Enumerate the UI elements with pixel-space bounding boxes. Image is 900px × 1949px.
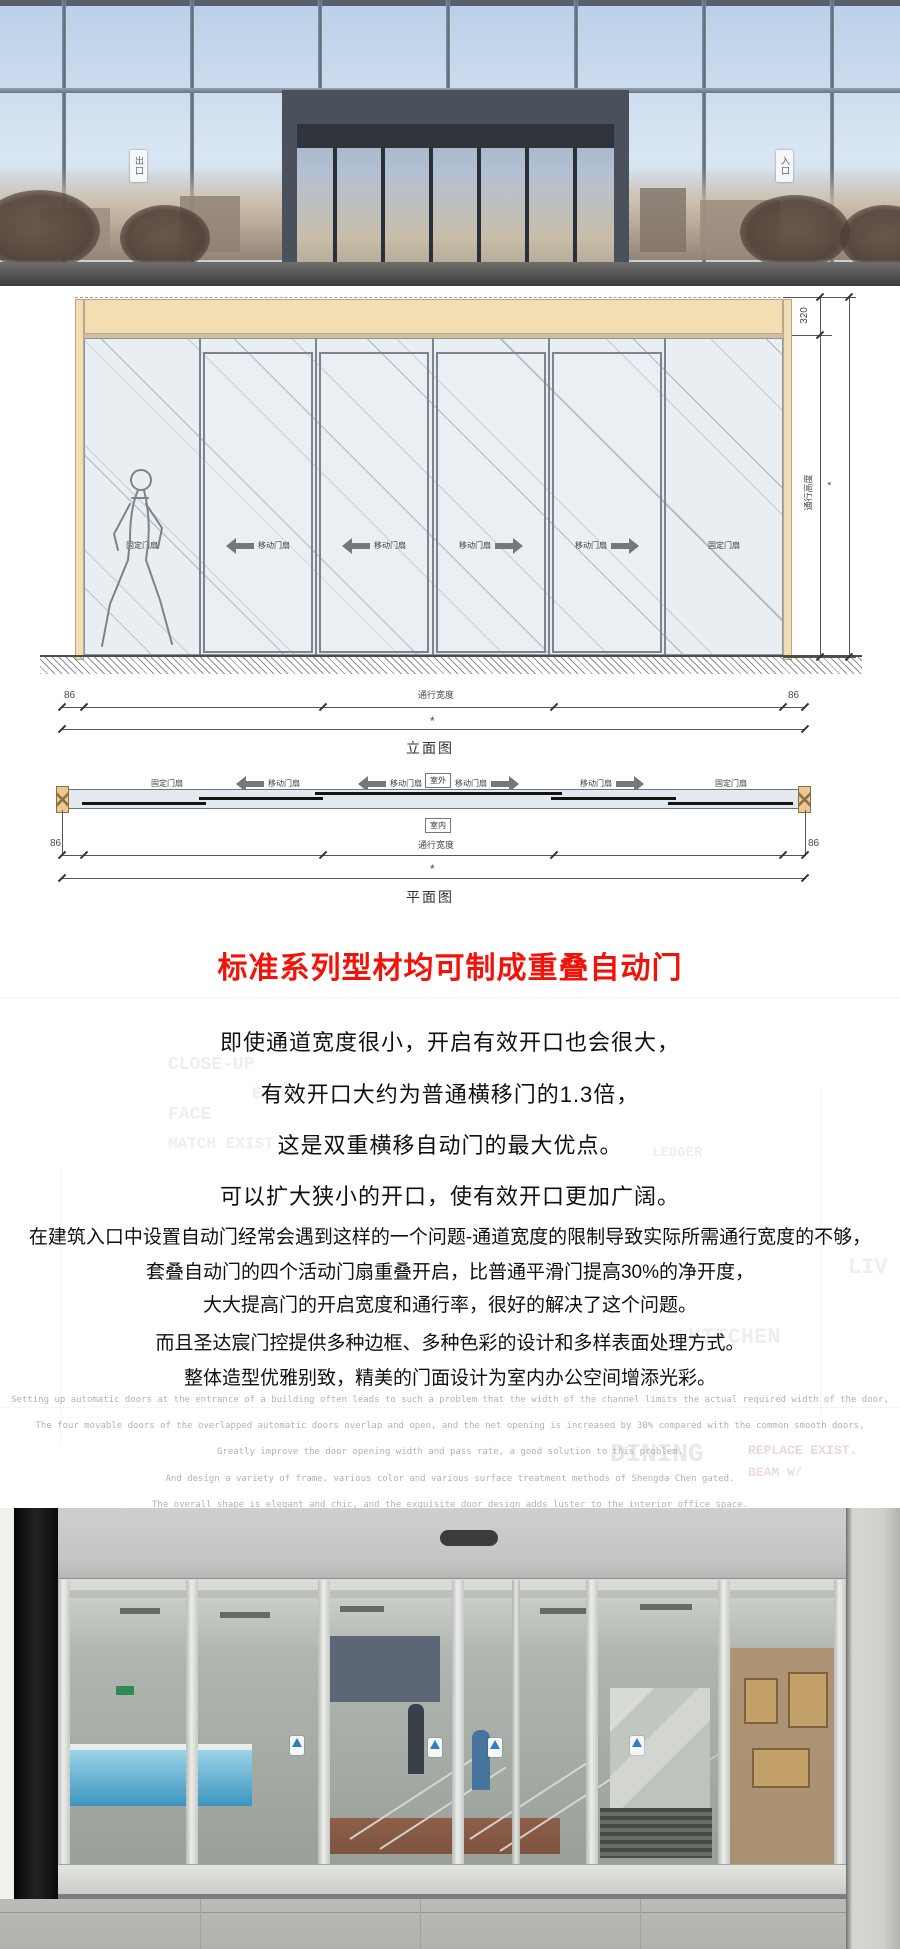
person-figure bbox=[88, 464, 193, 656]
plan-label-moving-right: 移动门扇 bbox=[455, 778, 519, 789]
detail-line: 而且圣达宸门控提供多种边框、多种色彩的设计和多样表面处理方式。 bbox=[0, 1328, 900, 1355]
english-line-clipped: The overall shape is elegant and chic, a… bbox=[0, 1500, 900, 1508]
ceiling-vent bbox=[540, 1608, 586, 1614]
sliding-leaf-outline bbox=[319, 352, 429, 653]
tile-floor bbox=[0, 1899, 900, 1949]
dim-86-left: 86 bbox=[64, 690, 75, 701]
panel-label-text: 固定门扇 bbox=[708, 540, 740, 551]
panel-label-fixed: 固定门扇 bbox=[708, 540, 740, 551]
plan-dim-86-right: 86 bbox=[808, 838, 819, 849]
panel-label-text: 移动门扇 bbox=[580, 778, 612, 789]
hero-photo-building-entrance: 出口 入口 bbox=[0, 0, 900, 286]
english-line: And design a variety of frame, various c… bbox=[0, 1474, 900, 1484]
dim-tick bbox=[801, 703, 809, 711]
panel-label-text: 固定门扇 bbox=[151, 778, 183, 789]
wall-plaque bbox=[744, 1678, 778, 1724]
extension-line bbox=[792, 335, 832, 336]
facade-base bbox=[0, 262, 900, 286]
dim-height-star: * bbox=[826, 482, 837, 486]
section-title: 标准系列型材均可制成重叠自动门 bbox=[0, 943, 900, 987]
plan-leaf bbox=[315, 792, 440, 795]
panel-label-text: 移动门扇 bbox=[459, 540, 491, 551]
radiator-grille bbox=[600, 1808, 712, 1858]
staircase-reflection bbox=[610, 1688, 710, 1808]
panel-label-text: 移动门扇 bbox=[374, 540, 406, 551]
outdoor-walkway bbox=[330, 1818, 560, 1854]
panel-divider bbox=[664, 338, 666, 655]
warning-sticker-icon bbox=[290, 1736, 304, 1755]
panel-label-text: 移动门扇 bbox=[575, 540, 607, 551]
panel-divider bbox=[199, 338, 201, 655]
door-frame-mullion bbox=[58, 1580, 70, 1900]
dark-door-jamb bbox=[14, 1508, 58, 1949]
detail-line: 套叠自动门的四个活动门扇重叠开启，比普通平滑门提高30%的净开度， bbox=[0, 1257, 900, 1284]
watermark-text: CLOSE-UP bbox=[168, 1055, 254, 1075]
dim-width-label: 通行宽度 bbox=[418, 688, 454, 701]
door-frame-mullion bbox=[186, 1580, 198, 1900]
arrow-right-icon bbox=[495, 543, 513, 549]
reflected-tree bbox=[740, 195, 850, 269]
feature-line: 即使通道宽度很小，开启有效开口也会很大， bbox=[0, 1025, 900, 1057]
plan-dim-86-left: 86 bbox=[50, 838, 61, 849]
door-frame-mullion bbox=[718, 1580, 730, 1900]
door-bottom-rail bbox=[58, 1864, 846, 1895]
dimension-line-overall bbox=[62, 729, 805, 730]
interior-doors-photo bbox=[0, 1508, 900, 1949]
dimension-line-overall bbox=[62, 878, 805, 879]
ceiling-vent bbox=[340, 1606, 384, 1612]
plan-dim-width-star: * bbox=[430, 862, 435, 876]
reflected-building bbox=[640, 188, 686, 252]
reception-desk-reflection bbox=[62, 1748, 252, 1806]
product-page: 出口 入口 固定门扇 移动门扇 移动门扇 移动门扇 移动门扇 固定门扇 bbox=[0, 0, 900, 1949]
arrow-right-icon bbox=[611, 543, 629, 549]
panel-divider bbox=[432, 338, 434, 655]
arrow-left-icon bbox=[352, 543, 370, 549]
inside-label: 室内 bbox=[425, 818, 451, 833]
exit-sign-reflection bbox=[116, 1686, 134, 1695]
tile-grout-line bbox=[420, 1899, 421, 1949]
exit-sign: 出口 bbox=[130, 150, 147, 182]
panel-divider bbox=[548, 338, 550, 655]
panel-label-moving-left: 移动门扇 bbox=[226, 540, 290, 551]
panel-label-text: 移动门扇 bbox=[455, 778, 487, 789]
outdoor-building-panel bbox=[330, 1636, 440, 1702]
plan-label-fixed: 固定门扇 bbox=[715, 778, 747, 789]
door-frame-mullion bbox=[318, 1580, 330, 1900]
warning-sticker-icon bbox=[630, 1736, 644, 1755]
description-section: CLOSE-UP EXIST. FACE MATCH EXIST. LEDGER… bbox=[0, 937, 900, 1508]
watermark-line bbox=[0, 1407, 900, 1408]
detail-line: 在建筑入口中设置自动门经常会遇到这样的一个问题-通道宽度的限制导致实际所需通行宽… bbox=[0, 1222, 900, 1249]
feature-line: 有效开口大约为普通横移门的1.3倍， bbox=[0, 1077, 900, 1109]
warning-sticker-icon bbox=[428, 1738, 442, 1757]
watermark-line bbox=[0, 997, 900, 998]
plan-label-moving-left: 移动门扇 bbox=[358, 778, 422, 789]
english-line: The four movable doors of the overlapped… bbox=[0, 1421, 900, 1431]
plan-leaf bbox=[436, 792, 562, 795]
entrance-header bbox=[297, 124, 614, 148]
desk-counter-top bbox=[62, 1744, 252, 1750]
plan-end-post-right bbox=[798, 786, 811, 813]
sliding-leaf-outline bbox=[552, 352, 662, 653]
extension-line bbox=[62, 810, 63, 856]
panel-label-moving-right: 移动门扇 bbox=[575, 540, 639, 551]
ceiling-vent bbox=[120, 1608, 160, 1614]
dim-tick bbox=[801, 725, 809, 733]
panel-label-moving-right: 移动门扇 bbox=[459, 540, 523, 551]
elevation-caption: 立面图 bbox=[406, 738, 454, 758]
outside-label: 室外 bbox=[425, 773, 451, 788]
wall-sliver bbox=[0, 1508, 14, 1949]
door-frame-mullion bbox=[452, 1580, 464, 1900]
plan-label-moving-right: 移动门扇 bbox=[580, 778, 644, 789]
door-frame-mullion bbox=[586, 1580, 598, 1900]
door-sensor bbox=[440, 1530, 498, 1546]
door-frame-mullion bbox=[834, 1580, 846, 1900]
sliding-leaf-outline bbox=[436, 352, 546, 653]
plan-leaf bbox=[668, 802, 793, 805]
technical-drawings-sheet: 固定门扇 移动门扇 移动门扇 移动门扇 移动门扇 固定门扇 bbox=[0, 286, 900, 937]
plan-label-fixed: 固定门扇 bbox=[151, 778, 183, 789]
elevation-header-beam bbox=[84, 299, 783, 334]
dim-height-label: 通行高度 bbox=[802, 474, 815, 510]
plan-end-post-left bbox=[56, 786, 69, 813]
english-line: Greatly improve the door opening width a… bbox=[0, 1447, 900, 1457]
dimension-line-vertical bbox=[820, 297, 821, 657]
construction-line bbox=[75, 297, 856, 298]
ceiling-vent bbox=[220, 1612, 270, 1618]
extension-line bbox=[805, 810, 806, 856]
plan-caption: 平面图 bbox=[406, 887, 454, 907]
english-line: Setting up automatic doors at the entran… bbox=[0, 1395, 900, 1405]
warning-sticker-icon bbox=[488, 1738, 502, 1757]
dimension-line bbox=[62, 855, 805, 856]
panel-label-text: 移动门扇 bbox=[268, 778, 300, 789]
dim-width-star: * bbox=[430, 714, 435, 728]
dim-tick bbox=[801, 874, 809, 882]
tile-grout-line bbox=[200, 1899, 201, 1949]
wall-plaque bbox=[752, 1748, 810, 1788]
plan-leaf bbox=[82, 802, 206, 805]
panel-label-moving-left: 移动门扇 bbox=[342, 540, 406, 551]
arrow-left-icon bbox=[246, 781, 264, 787]
tile-grout-line bbox=[640, 1899, 641, 1949]
entrance-sign: 入口 bbox=[776, 150, 793, 182]
arrow-left-icon bbox=[368, 781, 386, 787]
door-meeting-stile bbox=[512, 1580, 520, 1900]
detail-line: 大大提高门的开启宽度和通行率，很好的解决了这个问题。 bbox=[0, 1290, 900, 1317]
elevation-right-jamb bbox=[783, 299, 792, 660]
right-pillar bbox=[846, 1508, 900, 1949]
panel-divider bbox=[315, 338, 317, 655]
ceiling-vent bbox=[640, 1604, 692, 1610]
dim-header-height: 320 bbox=[799, 307, 810, 324]
dim-tick bbox=[801, 851, 809, 859]
dimension-line bbox=[62, 707, 805, 708]
ground-hatch bbox=[40, 655, 862, 674]
sliding-leaf-outline bbox=[203, 352, 313, 653]
plan-dim-width-label: 通行宽度 bbox=[418, 838, 454, 851]
arrow-right-icon bbox=[616, 781, 634, 787]
plan-label-moving-left: 移动门扇 bbox=[236, 778, 300, 789]
panel-label-text: 移动门扇 bbox=[258, 540, 290, 551]
facade-top-beam bbox=[0, 0, 900, 6]
detail-line: 整体造型优雅别致，精美的门面设计为室内办公空间增添光彩。 bbox=[0, 1363, 900, 1390]
wall-plaque bbox=[788, 1672, 828, 1728]
feature-line: 可以扩大狭小的开口，使有效开口更加广阔。 bbox=[0, 1179, 900, 1211]
dim-86-right: 86 bbox=[788, 690, 799, 701]
arrow-right-icon bbox=[491, 781, 509, 787]
elevation-left-jamb bbox=[75, 299, 84, 660]
dimension-line-vertical bbox=[849, 297, 850, 657]
plan-leaf bbox=[551, 797, 676, 800]
feature-line: 这是双重横移自动门的最大优点。 bbox=[0, 1128, 900, 1160]
tile-grout-line bbox=[0, 1912, 900, 1913]
plan-leaf bbox=[199, 797, 323, 800]
arrow-left-icon bbox=[236, 543, 254, 549]
panel-label-text: 固定门扇 bbox=[715, 778, 747, 789]
person-silhouette bbox=[408, 1704, 424, 1774]
panel-label-text: 移动门扇 bbox=[390, 778, 422, 789]
